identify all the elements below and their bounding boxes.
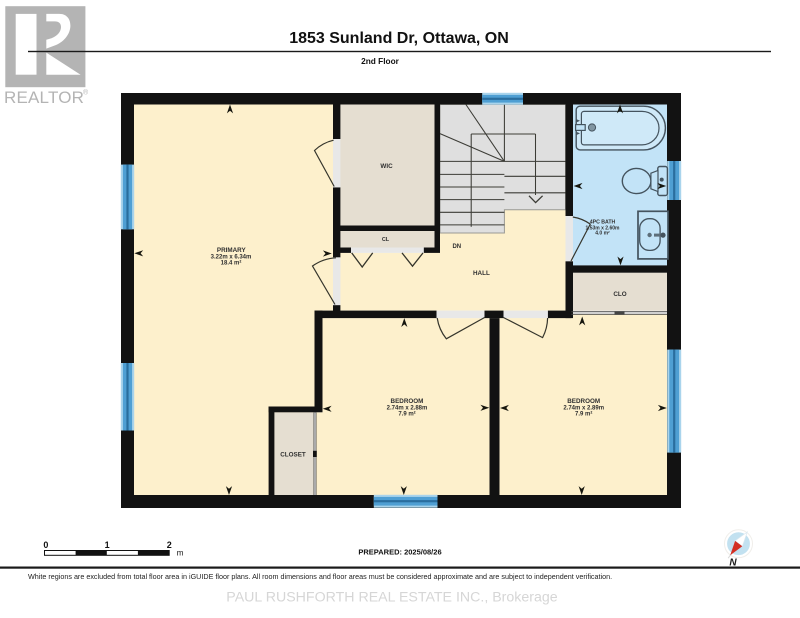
- svg-text:WIC: WIC: [380, 163, 393, 170]
- svg-text:m: m: [177, 549, 184, 558]
- svg-text:REALTOR: REALTOR: [4, 88, 84, 107]
- svg-text:7.9 m²: 7.9 m²: [575, 410, 592, 417]
- svg-text:PREPARED: 2025/08/26: PREPARED: 2025/08/26: [358, 547, 441, 556]
- svg-text:1853 Sunland Dr, Ottawa, ON: 1853 Sunland Dr, Ottawa, ON: [289, 30, 509, 47]
- svg-text:®: ®: [83, 89, 89, 97]
- svg-text:PRIMARY: PRIMARY: [217, 247, 247, 254]
- svg-text:White regions are excluded fro: White regions are excluded from total fl…: [28, 572, 612, 581]
- svg-text:PAUL RUSHFORTH REAL ESTATE INC: PAUL RUSHFORTH REAL ESTATE INC., Brokera…: [226, 590, 557, 606]
- svg-text:4.0 m²: 4.0 m²: [595, 230, 610, 236]
- svg-text:2nd Floor: 2nd Floor: [361, 56, 400, 66]
- svg-text:CL: CL: [382, 237, 390, 243]
- svg-text:BEDROOM: BEDROOM: [567, 398, 600, 405]
- svg-text:1: 1: [105, 540, 110, 550]
- svg-text:18.4 m²: 18.4 m²: [221, 260, 242, 267]
- svg-text:DN: DN: [452, 244, 461, 250]
- svg-text:HALL: HALL: [473, 270, 490, 277]
- svg-text:CLO: CLO: [613, 291, 626, 298]
- svg-text:CLOSET: CLOSET: [280, 451, 306, 458]
- svg-text:2: 2: [167, 540, 172, 550]
- svg-text:7.9 m²: 7.9 m²: [398, 410, 415, 417]
- svg-text:BEDROOM: BEDROOM: [391, 398, 424, 405]
- svg-text:0: 0: [43, 540, 48, 550]
